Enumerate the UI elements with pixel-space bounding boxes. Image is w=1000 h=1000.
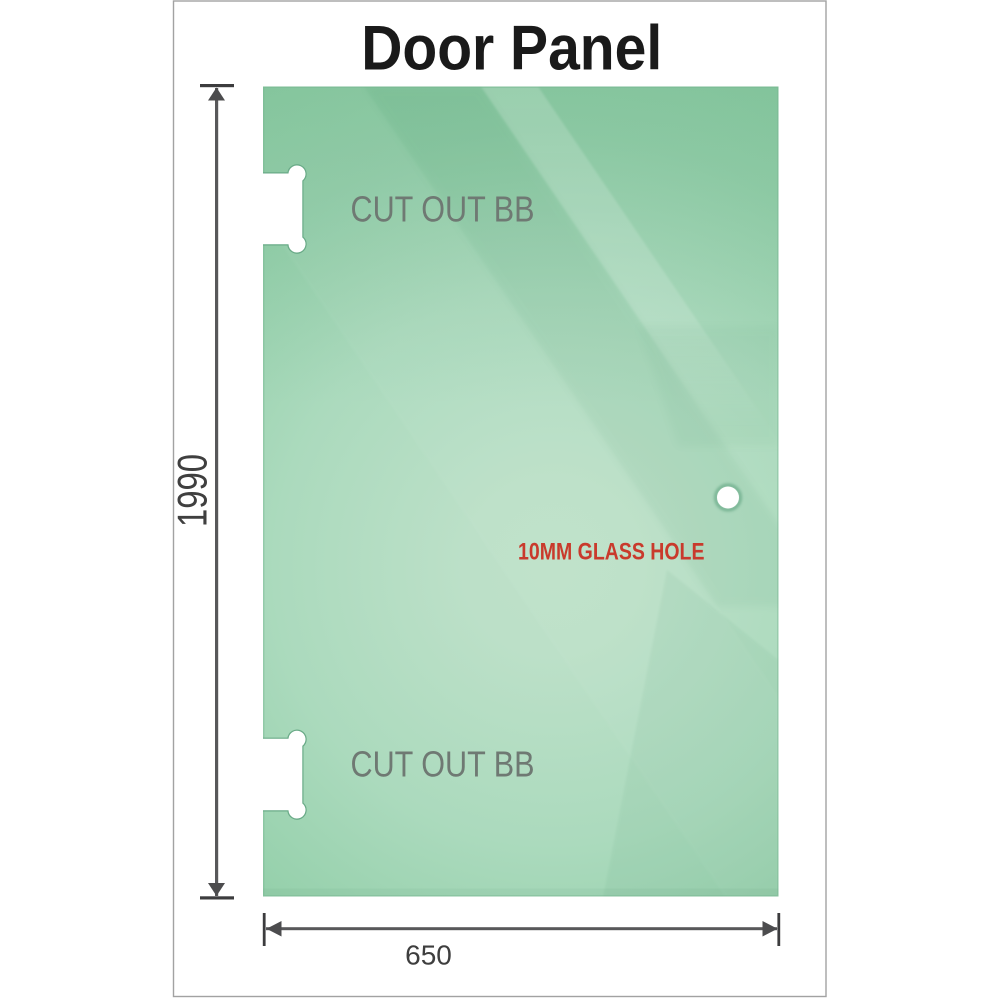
- svg-text:CUT OUT BB: CUT OUT BB: [351, 743, 535, 784]
- svg-text:10MM GLASS HOLE: 10MM GLASS HOLE: [518, 539, 705, 566]
- svg-text:650: 650: [405, 940, 452, 971]
- svg-text:1990: 1990: [169, 454, 216, 527]
- svg-text:CUT OUT BB: CUT OUT BB: [351, 189, 535, 230]
- svg-text:Door Panel: Door Panel: [361, 14, 662, 84]
